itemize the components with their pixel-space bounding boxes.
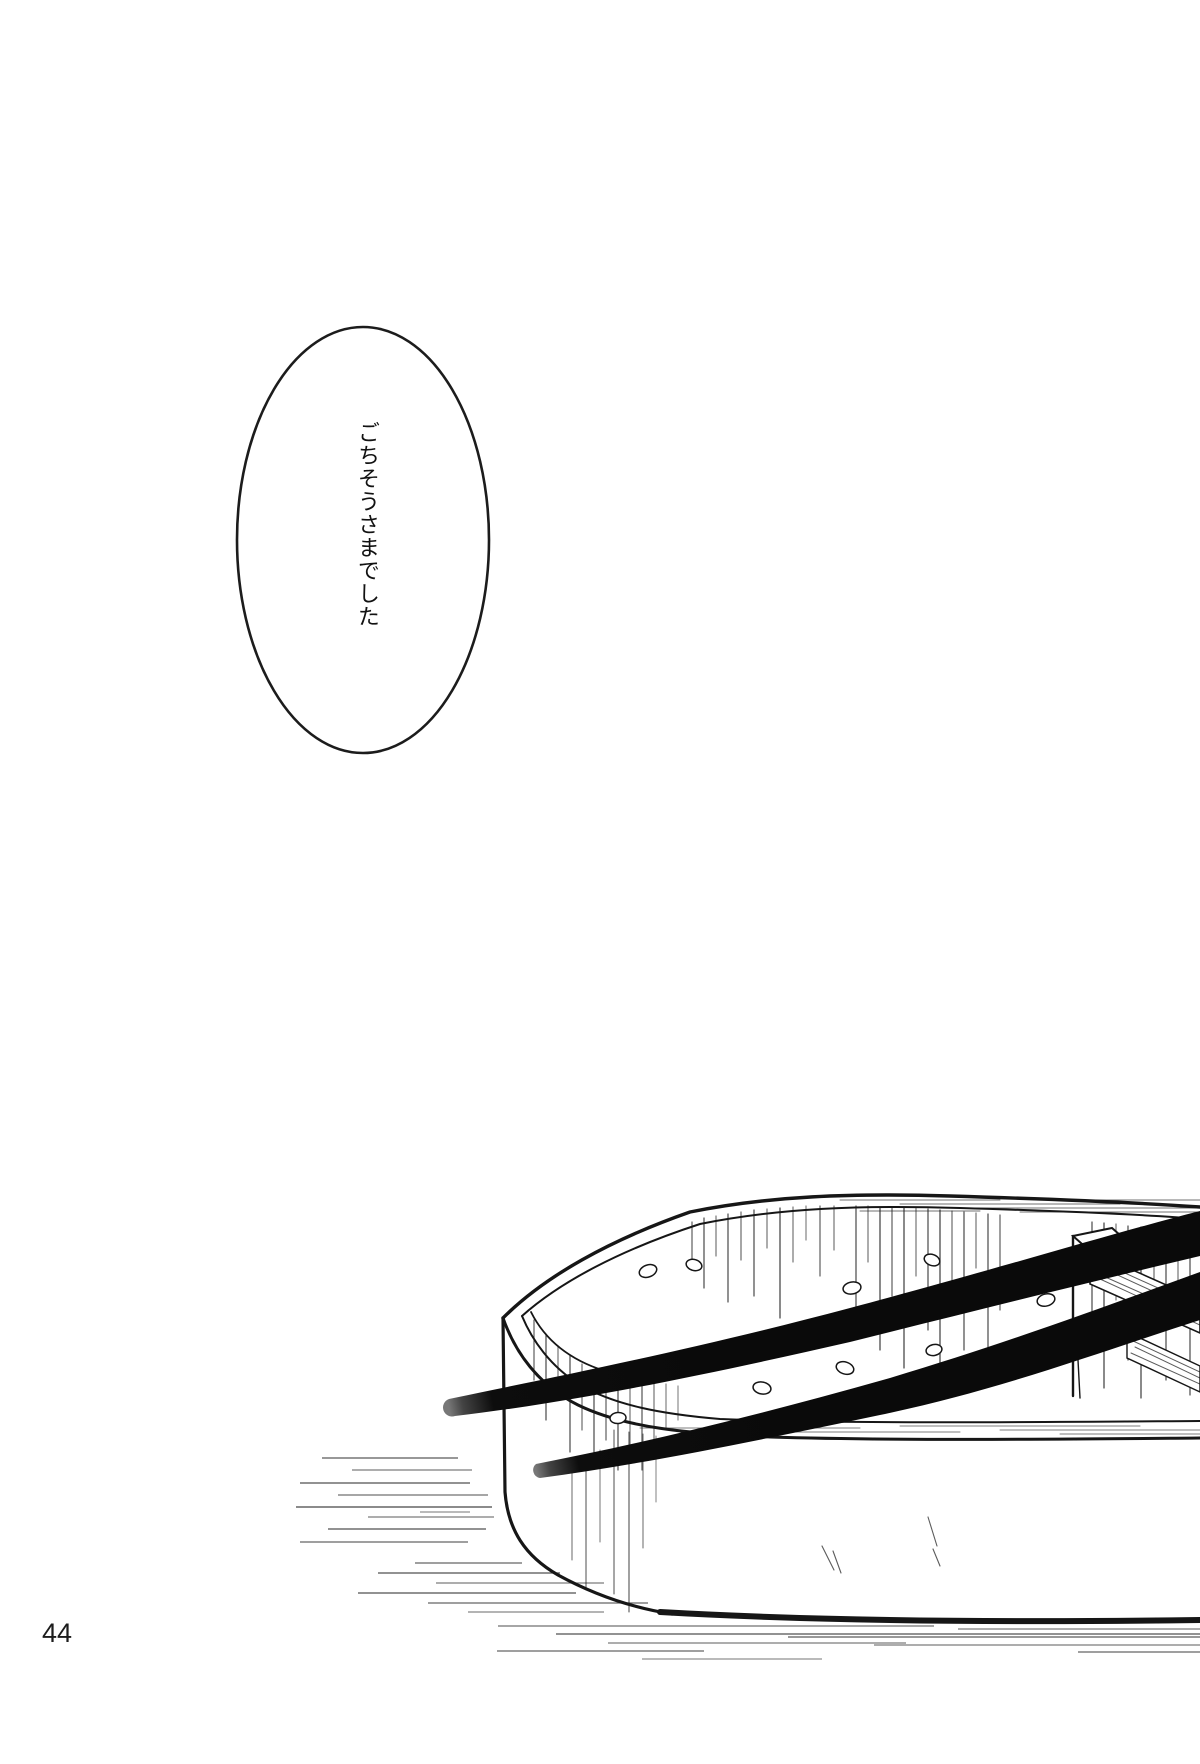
manga-page: ごちそうさまでした 44 bbox=[0, 0, 1200, 1764]
bottom-edge bbox=[660, 1612, 1200, 1621]
speech-bubble-text: ごちそうさまでした bbox=[352, 421, 383, 636]
front-wall-scratches bbox=[822, 1517, 940, 1573]
page-number: 44 bbox=[42, 1618, 72, 1649]
speed-lines-bottom bbox=[358, 1563, 1200, 1659]
divider-plank-lower bbox=[1127, 1332, 1200, 1392]
bento-box-illustration bbox=[0, 0, 1200, 1764]
speed-lines-left bbox=[296, 1458, 494, 1542]
